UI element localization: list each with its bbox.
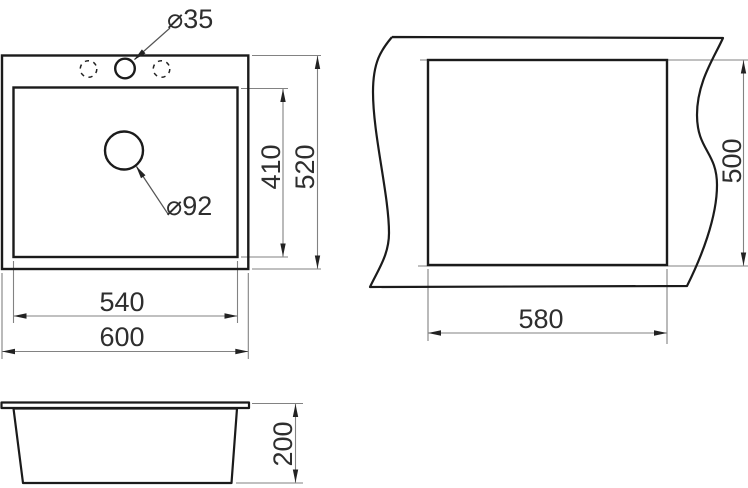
countertop-cutout-view: 500 580 bbox=[370, 37, 748, 344]
sink-side-view: 200 bbox=[2, 403, 304, 484]
dim-label-faucet-diameter: ⌀35 bbox=[167, 4, 213, 34]
sink-flange bbox=[2, 403, 250, 409]
sink-body-profile bbox=[14, 409, 238, 484]
sink-top-view: ⌀35 ⌀92 410 520 540 bbox=[2, 4, 321, 359]
leader-arrow bbox=[136, 166, 146, 178]
technical-drawing: ⌀35 ⌀92 410 520 540 bbox=[0, 0, 748, 488]
dim-label-500: 500 bbox=[717, 138, 747, 183]
optional-hole-right bbox=[153, 61, 170, 78]
dimension-cutout-width: 580 bbox=[428, 304, 667, 336]
dim-label-580: 580 bbox=[518, 304, 563, 334]
dim-label-drain-diameter: ⌀92 bbox=[166, 191, 212, 221]
drain-hole bbox=[105, 132, 143, 170]
dimension-overall-length: 520 bbox=[290, 56, 320, 269]
dim-label-520: 520 bbox=[290, 144, 320, 189]
dimension-bowl-width: 540 bbox=[14, 287, 238, 319]
dim-label-200: 200 bbox=[268, 421, 298, 466]
dimension-height: 200 bbox=[268, 404, 298, 483]
drawing-svg: ⌀35 ⌀92 410 520 540 bbox=[0, 0, 748, 488]
top-view-extension-lines bbox=[2, 56, 321, 360]
cutout-opening bbox=[428, 60, 667, 265]
dimension-bowl-length: 410 bbox=[256, 89, 286, 257]
sink-bowl bbox=[14, 88, 238, 258]
leader-faucet-diameter: ⌀35 bbox=[134, 4, 213, 60]
faucet-hole bbox=[115, 59, 135, 79]
dim-label-600: 600 bbox=[99, 322, 144, 352]
optional-hole-left bbox=[80, 61, 97, 78]
dim-label-410: 410 bbox=[256, 144, 286, 189]
countertop-outline bbox=[370, 37, 723, 287]
dimension-cutout-length: 500 bbox=[717, 61, 747, 266]
dim-label-540: 540 bbox=[99, 287, 144, 317]
dimension-overall-width: 600 bbox=[2, 322, 248, 354]
leader-drain-diameter: ⌀92 bbox=[136, 166, 212, 221]
